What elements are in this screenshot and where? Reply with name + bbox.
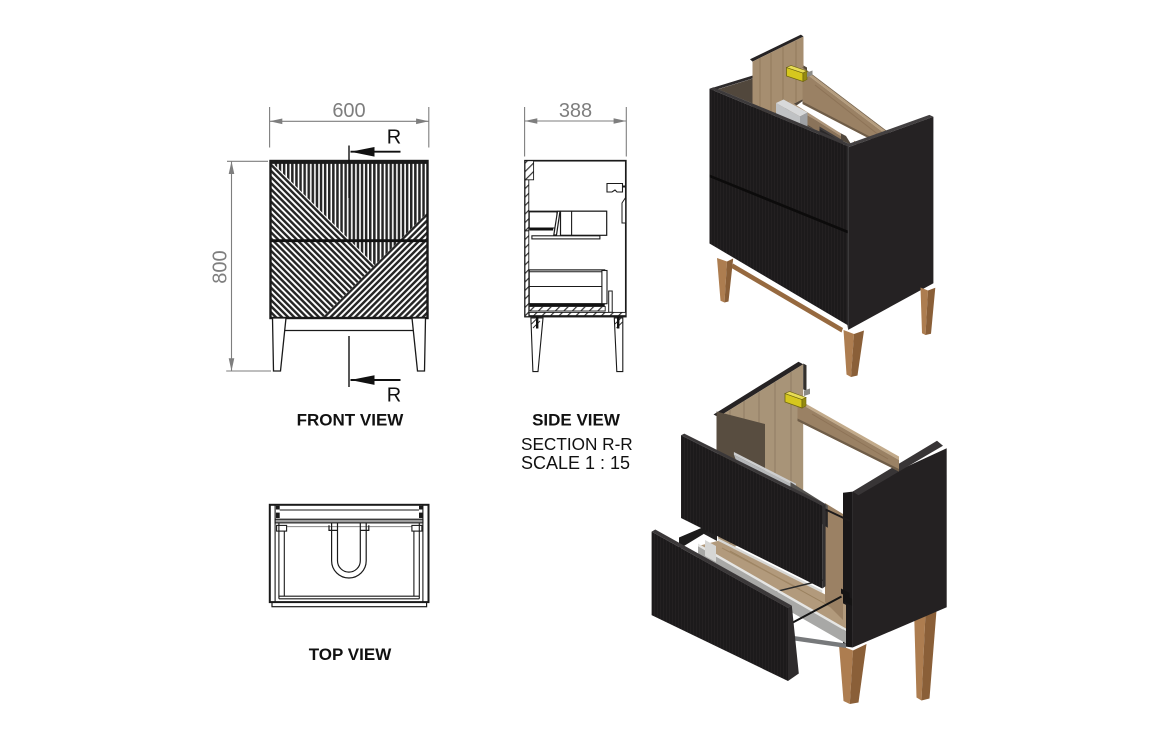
svg-text:R: R [387, 127, 401, 149]
svg-text:600: 600 [332, 100, 365, 122]
svg-text:SCALE 1 : 15: SCALE 1 : 15 [521, 453, 630, 473]
svg-text:SECTION R-R: SECTION R-R [521, 434, 633, 454]
svg-text:FRONT VIEW: FRONT VIEW [297, 411, 405, 430]
svg-text:SIDE VIEW: SIDE VIEW [532, 411, 621, 430]
svg-text:800: 800 [210, 250, 232, 283]
svg-text:388: 388 [559, 100, 592, 122]
svg-text:TOP VIEW: TOP VIEW [309, 645, 392, 664]
svg-text:R: R [387, 385, 401, 407]
